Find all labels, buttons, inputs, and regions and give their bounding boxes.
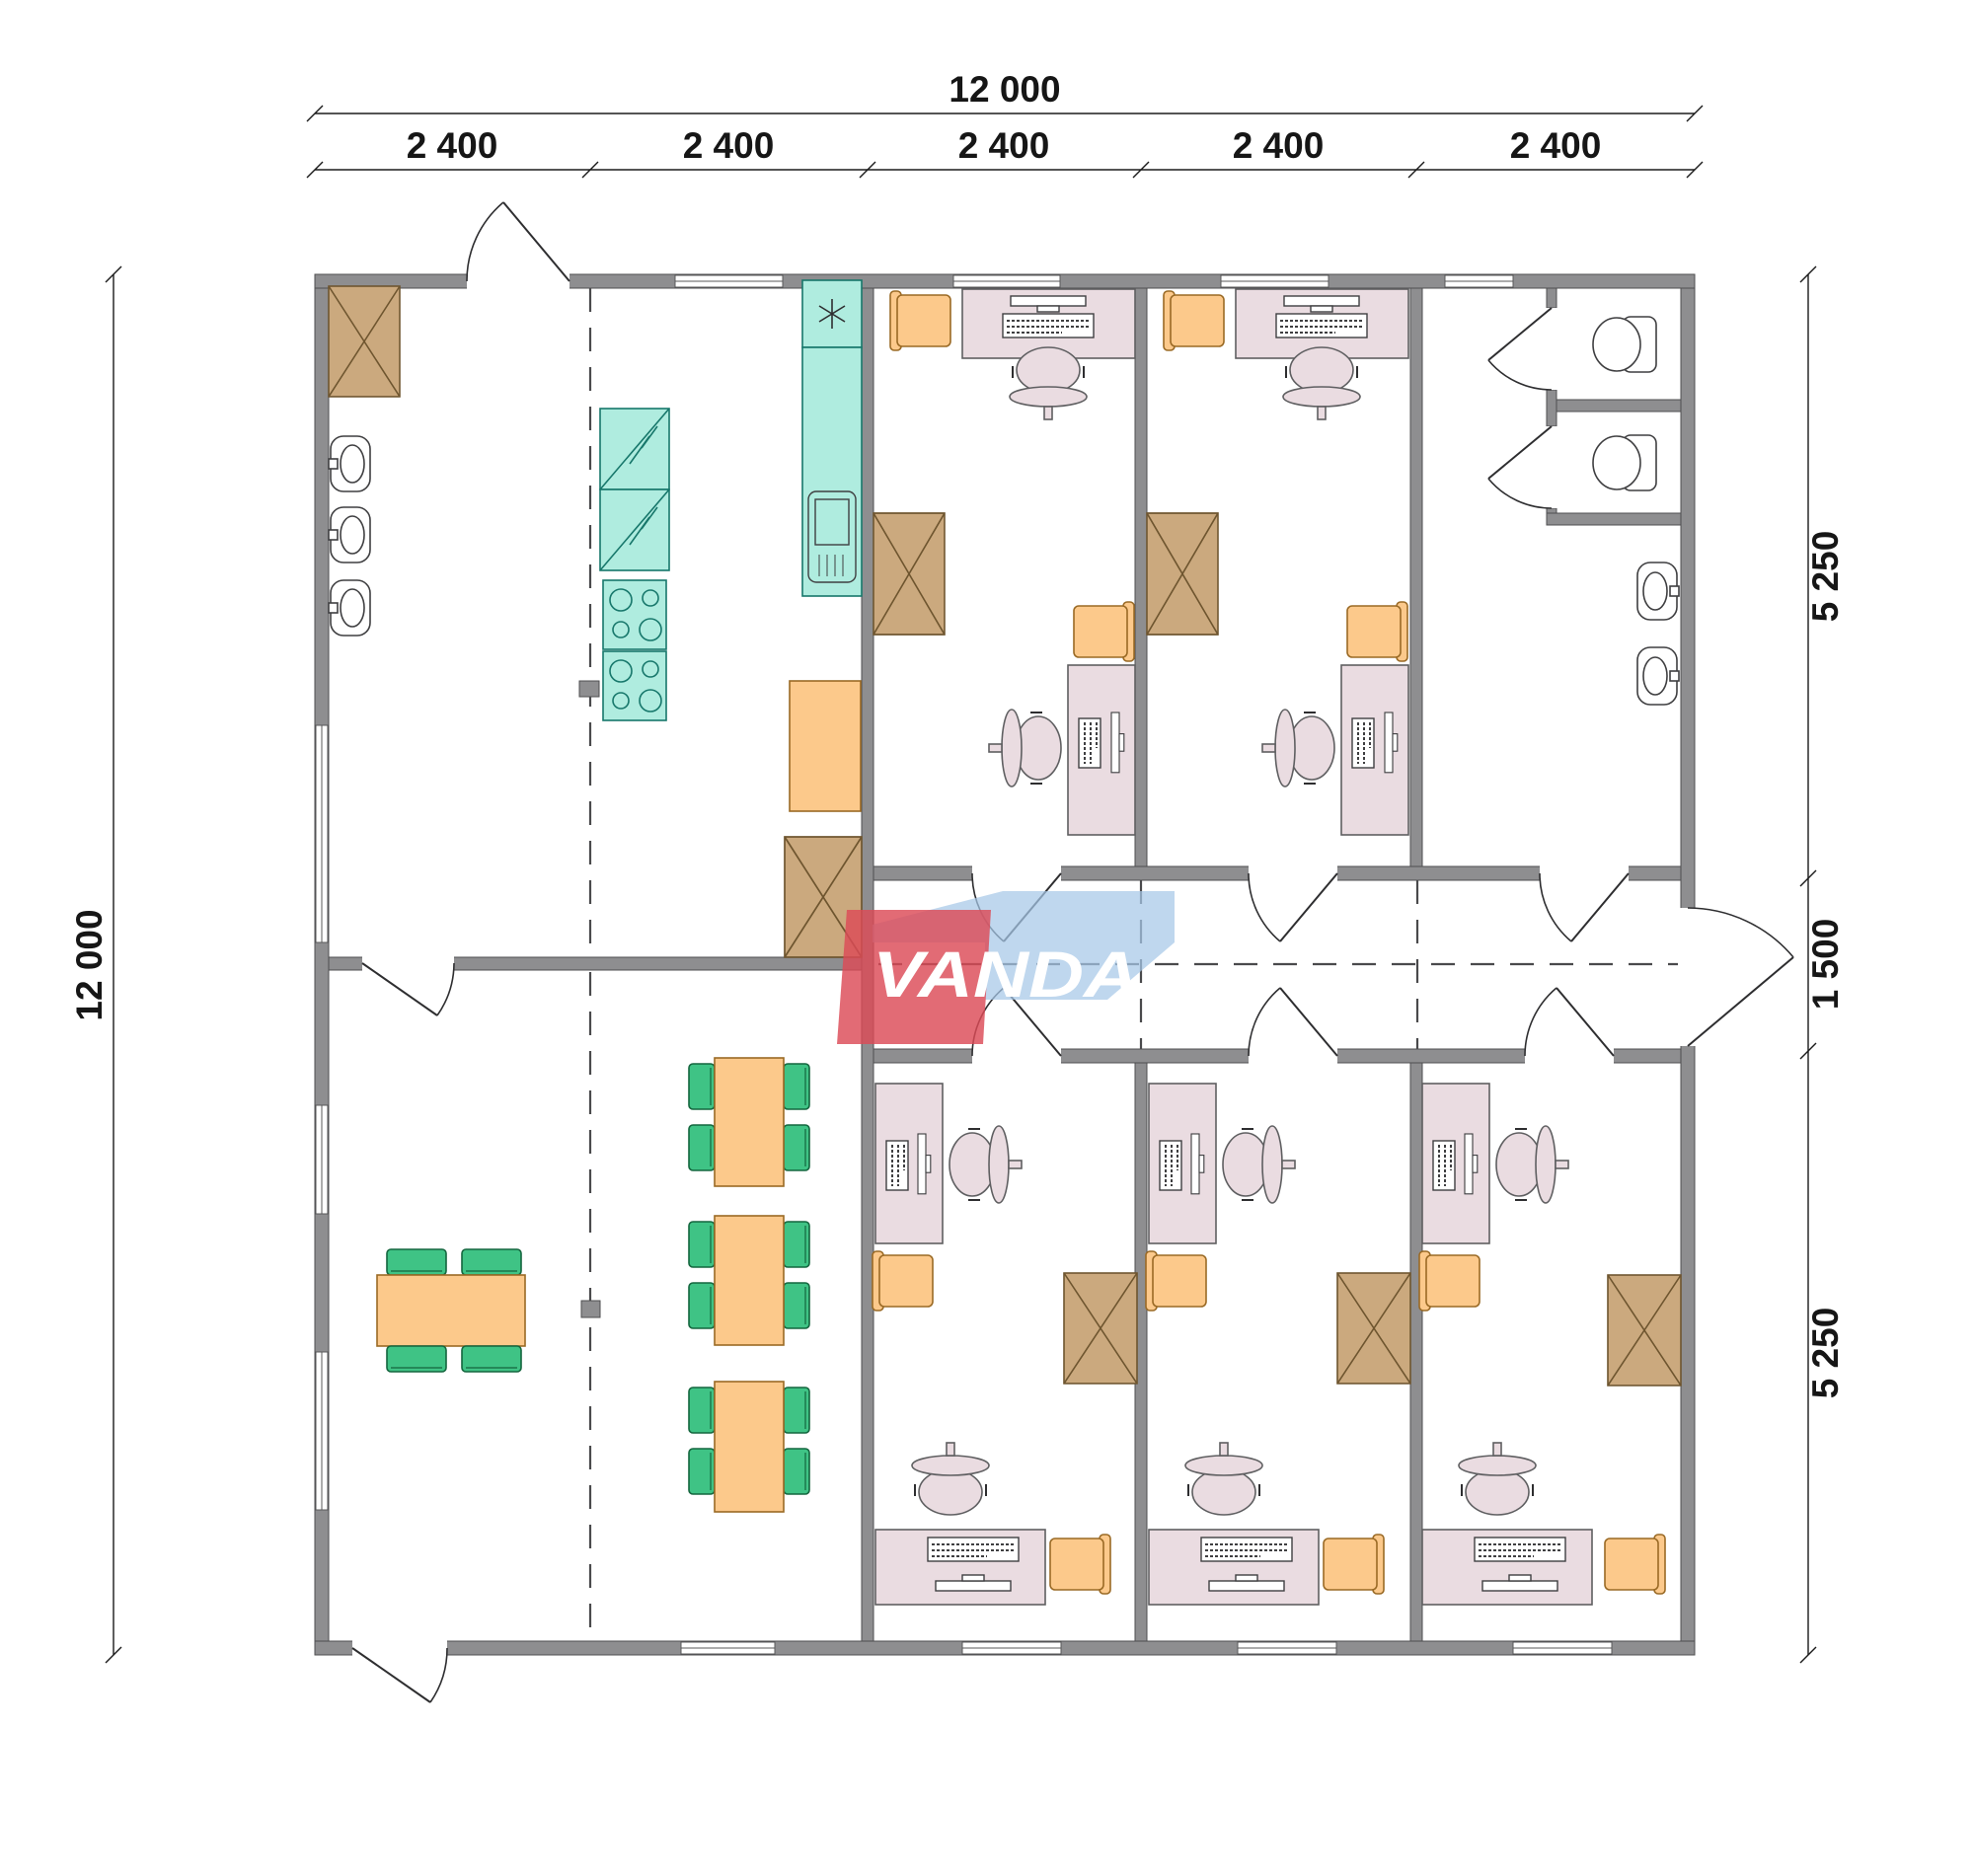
office-chair-icon bbox=[949, 1126, 1022, 1203]
green-chair bbox=[462, 1346, 521, 1372]
green-chair bbox=[689, 1222, 715, 1267]
office-bottom-1 bbox=[873, 1084, 1137, 1605]
office-chair-icon bbox=[1262, 710, 1334, 787]
side-table bbox=[790, 681, 861, 811]
green-chair bbox=[784, 1388, 809, 1433]
desk-computer-icon bbox=[928, 1538, 1019, 1561]
orange-chair bbox=[1074, 602, 1134, 661]
desk-computer-icon bbox=[1352, 718, 1374, 768]
desk-computer-icon bbox=[1003, 314, 1094, 338]
office-chair-icon bbox=[989, 710, 1061, 787]
orange-chair bbox=[890, 291, 950, 350]
green-chair bbox=[784, 1283, 809, 1328]
green-chair bbox=[689, 1064, 715, 1109]
crossed-cabinet-icon bbox=[1608, 1275, 1681, 1386]
wall-stall-divider bbox=[1556, 400, 1681, 412]
stove-icon bbox=[603, 651, 666, 720]
door-swing-icon bbox=[1249, 873, 1337, 941]
orange-chair bbox=[1146, 1251, 1206, 1311]
washbasin-icon bbox=[329, 580, 370, 636]
green-chair bbox=[387, 1346, 446, 1372]
door-swing-icon bbox=[1540, 873, 1629, 941]
dining-table bbox=[715, 1216, 784, 1345]
dining-table bbox=[715, 1382, 784, 1512]
toilet-icon bbox=[1593, 317, 1656, 372]
desk-computer-icon bbox=[886, 1141, 908, 1190]
dim-label-top-total: 12 000 bbox=[949, 69, 1060, 110]
door-swing-icon bbox=[1525, 988, 1614, 1056]
kitchen-room bbox=[329, 280, 862, 957]
desk bbox=[1149, 1084, 1216, 1243]
wall-stall-left-b bbox=[1547, 390, 1556, 426]
office-chair-icon bbox=[1185, 1443, 1262, 1515]
orange-chair bbox=[1324, 1535, 1384, 1594]
dim-label-seg-5: 2 400 bbox=[1510, 125, 1602, 166]
orange-chair bbox=[1347, 602, 1407, 661]
office-bottom-3 bbox=[1419, 1084, 1681, 1605]
door-swing-icon bbox=[1688, 908, 1793, 1046]
door-swing-icon bbox=[1249, 988, 1337, 1056]
dim-label-left-total: 12 000 bbox=[69, 909, 110, 1020]
desk-computer-icon bbox=[1079, 718, 1101, 768]
dim-label-right-1: 5 250 bbox=[1805, 531, 1846, 623]
desk-computer-icon bbox=[1475, 1538, 1565, 1561]
door-swing-icon bbox=[1488, 308, 1552, 390]
kitchen-counter bbox=[802, 347, 862, 596]
green-chair bbox=[784, 1125, 809, 1170]
green-chair bbox=[784, 1449, 809, 1494]
dim-label-seg-3: 2 400 bbox=[958, 125, 1050, 166]
wall-stall-left-a bbox=[1547, 288, 1556, 308]
office-chair-icon bbox=[1283, 347, 1360, 419]
dim-label-seg-1: 2 400 bbox=[407, 125, 498, 166]
dim-label-seg-2: 2 400 bbox=[683, 125, 775, 166]
washbasin-icon bbox=[1637, 563, 1679, 620]
wall-stall-bottom bbox=[1547, 513, 1681, 525]
toilet-icon bbox=[1593, 435, 1656, 490]
wall-module45-bottom bbox=[1410, 1063, 1422, 1641]
orange-chair bbox=[873, 1251, 933, 1311]
crossed-cabinet-icon bbox=[1064, 1273, 1137, 1384]
vanda-logo: VANDA bbox=[837, 891, 1175, 1044]
column-icon bbox=[581, 1301, 600, 1317]
office-chair-icon bbox=[912, 1443, 989, 1515]
floor-plan-stage: 12 000 2 400 2 400 2 400 2 400 2 400 12 … bbox=[0, 0, 1974, 1876]
washbasin-icon bbox=[329, 436, 370, 491]
office-chair-icon bbox=[1223, 1126, 1295, 1203]
dim-label-right-3: 5 250 bbox=[1805, 1308, 1846, 1399]
desk-computer-icon bbox=[1276, 314, 1367, 338]
green-chair bbox=[784, 1064, 809, 1109]
office-chair-icon bbox=[1459, 1443, 1536, 1515]
column-icon bbox=[579, 681, 599, 697]
office-chair-icon bbox=[1496, 1126, 1568, 1203]
door-swing-icon bbox=[467, 202, 569, 281]
orange-chair bbox=[1164, 291, 1224, 350]
green-chair bbox=[784, 1222, 809, 1267]
dining-table bbox=[377, 1275, 525, 1346]
desk bbox=[1422, 1084, 1489, 1243]
dim-label-right-2: 1 500 bbox=[1805, 919, 1846, 1011]
green-chair bbox=[689, 1388, 715, 1433]
green-chair bbox=[689, 1283, 715, 1328]
crossed-cabinet-icon bbox=[329, 286, 400, 397]
office-bottom-2 bbox=[1146, 1084, 1410, 1605]
stove-icon bbox=[603, 580, 666, 649]
washbasin-icon bbox=[329, 507, 370, 563]
green-chair bbox=[462, 1249, 521, 1275]
dining-table bbox=[715, 1058, 784, 1186]
crossed-cabinet-icon bbox=[873, 513, 945, 635]
washroom bbox=[1593, 317, 1679, 705]
desk-computer-icon bbox=[1160, 1141, 1181, 1190]
floor-plan-drawing: 12 000 2 400 2 400 2 400 2 400 2 400 12 … bbox=[0, 0, 1974, 1876]
office-chair-icon bbox=[1010, 347, 1087, 419]
crossed-cabinet-icon bbox=[1337, 1273, 1410, 1384]
washbasin-icon bbox=[1637, 647, 1679, 705]
wall-module45-top bbox=[1410, 288, 1422, 866]
logo-text: VANDA bbox=[873, 938, 1139, 1011]
fridge-icon bbox=[600, 409, 669, 489]
fridge-icon bbox=[600, 489, 669, 570]
dim-label-seg-4: 2 400 bbox=[1233, 125, 1325, 166]
green-chair bbox=[689, 1125, 715, 1170]
orange-chair bbox=[1605, 1535, 1665, 1594]
desk-computer-icon bbox=[1201, 1538, 1292, 1561]
green-chair bbox=[387, 1249, 446, 1275]
desk-computer-icon bbox=[1433, 1141, 1455, 1190]
orange-chair bbox=[1419, 1251, 1480, 1311]
dining-room bbox=[377, 1058, 809, 1512]
desk bbox=[1068, 665, 1135, 835]
crossed-cabinet-icon bbox=[1147, 513, 1218, 635]
green-chair bbox=[689, 1449, 715, 1494]
office-top-2 bbox=[1147, 289, 1408, 835]
desk bbox=[1341, 665, 1408, 835]
office-top-1 bbox=[873, 289, 1135, 835]
orange-chair bbox=[1050, 1535, 1110, 1594]
desk bbox=[875, 1084, 943, 1243]
door-swing-icon bbox=[352, 1648, 447, 1702]
door-swing-icon bbox=[1488, 426, 1552, 508]
wall-module34-top bbox=[1135, 288, 1147, 866]
